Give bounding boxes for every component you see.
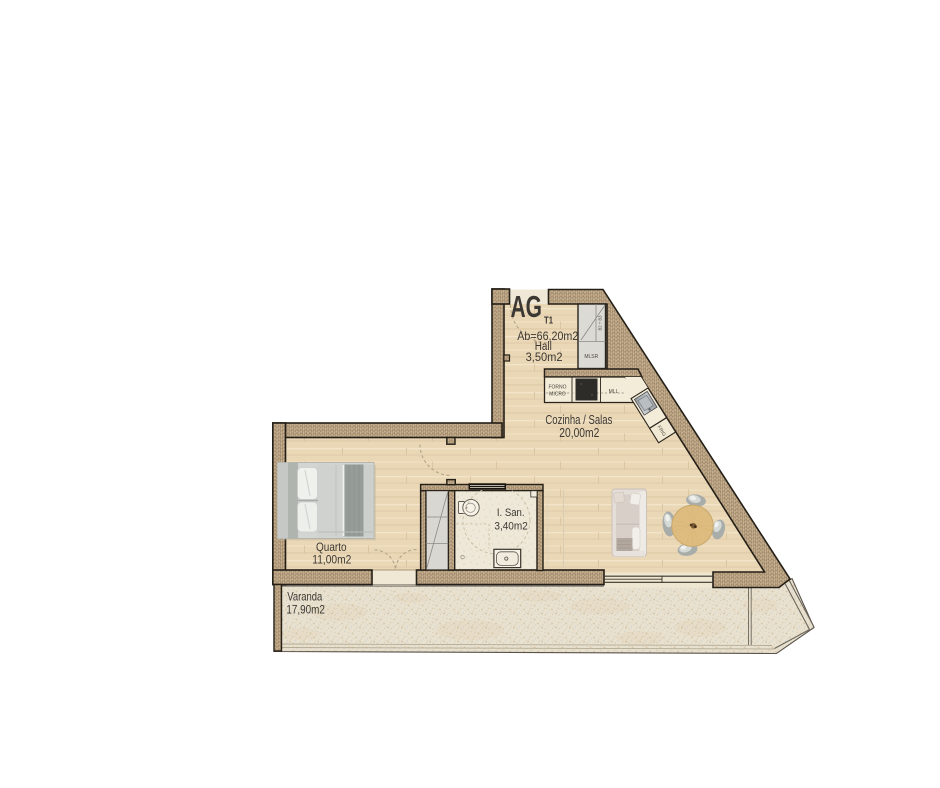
- svg-text:AG: AG: [511, 290, 543, 324]
- svg-text:I. San.: I. San.: [497, 507, 525, 519]
- svg-text:B2 + B3: B2 + B3: [598, 315, 603, 331]
- svg-text:3,50m2: 3,50m2: [526, 350, 563, 364]
- svg-text:MLSR: MLSR: [584, 354, 598, 360]
- svg-text:11,00m2: 11,00m2: [312, 553, 351, 567]
- svg-text:20,00m2: 20,00m2: [559, 425, 599, 440]
- svg-text:Varanda: Varanda: [287, 590, 322, 604]
- svg-text:MLL: MLL: [609, 389, 619, 395]
- svg-text:17,90m2: 17,90m2: [286, 603, 325, 617]
- svg-text:MICRO: MICRO: [549, 392, 566, 398]
- svg-text:3,40m2: 3,40m2: [494, 521, 527, 533]
- svg-text:T1: T1: [544, 316, 553, 327]
- svg-text:FORNO: FORNO: [548, 385, 566, 391]
